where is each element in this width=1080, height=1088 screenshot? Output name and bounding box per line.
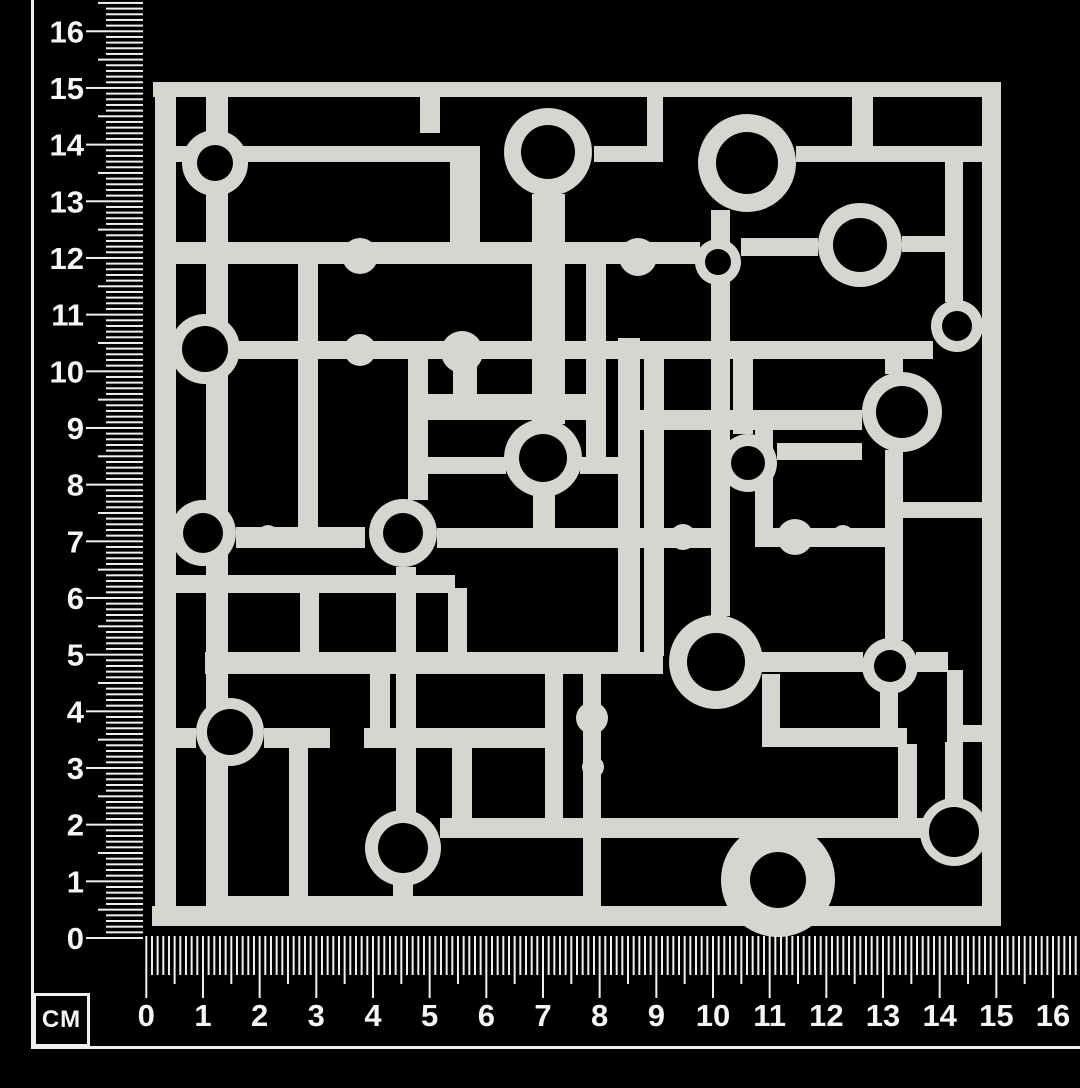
mm-tick bbox=[565, 936, 567, 975]
mm-tick bbox=[106, 665, 143, 667]
mm-tick bbox=[310, 936, 312, 975]
mm-tick bbox=[468, 936, 470, 975]
mm-tick bbox=[321, 936, 323, 975]
cm-tick bbox=[825, 936, 827, 998]
cm-unit-label: CM bbox=[42, 1006, 81, 1034]
mm-tick bbox=[519, 936, 521, 975]
mm-tick bbox=[446, 936, 448, 975]
design-dot bbox=[258, 525, 278, 545]
mm-tick bbox=[888, 936, 890, 975]
mm-tick bbox=[474, 936, 476, 975]
mm-tick bbox=[208, 936, 210, 975]
design-bar bbox=[532, 194, 565, 424]
half-cm-tick bbox=[570, 936, 572, 984]
design-ring-hole bbox=[876, 386, 928, 438]
mm-tick bbox=[610, 936, 612, 975]
design-bar bbox=[450, 146, 480, 244]
bottom-ruler-number: 15 bbox=[979, 998, 1013, 1033]
mm-tick bbox=[106, 801, 143, 803]
cm-tick bbox=[86, 767, 143, 769]
design-bar bbox=[408, 354, 428, 500]
half-cm-tick bbox=[98, 739, 143, 741]
design-bar bbox=[176, 728, 196, 748]
mm-tick bbox=[106, 70, 143, 72]
design-bar bbox=[364, 728, 545, 748]
mm-tick bbox=[106, 64, 143, 66]
mm-tick bbox=[1041, 936, 1043, 975]
mm-tick bbox=[1018, 936, 1020, 975]
mm-tick bbox=[576, 936, 578, 975]
cm-tick bbox=[655, 936, 657, 998]
mm-tick bbox=[106, 234, 143, 236]
mm-tick bbox=[264, 936, 266, 975]
bottom-ruler-number: 6 bbox=[478, 998, 495, 1033]
cm-tick bbox=[882, 936, 884, 998]
mm-tick bbox=[106, 183, 143, 185]
design-bar bbox=[647, 97, 663, 147]
bottom-ruler-number: 10 bbox=[696, 998, 730, 1033]
design-dot bbox=[576, 702, 608, 734]
mm-tick bbox=[763, 936, 765, 975]
half-cm-tick bbox=[98, 115, 143, 117]
design-bar bbox=[300, 588, 319, 658]
cm-tick bbox=[542, 936, 544, 998]
mm-tick bbox=[106, 580, 143, 582]
design-ring-hole bbox=[182, 326, 228, 372]
mm-tick bbox=[984, 936, 986, 975]
design-bar bbox=[420, 97, 440, 133]
mm-tick bbox=[774, 936, 776, 975]
half-cm-tick bbox=[98, 172, 143, 174]
mm-tick bbox=[106, 676, 143, 678]
mm-tick bbox=[1069, 936, 1071, 975]
cm-tick bbox=[259, 936, 261, 998]
design-ring-hole bbox=[750, 852, 806, 908]
mm-tick bbox=[950, 936, 952, 975]
cm-tick bbox=[1052, 936, 1054, 998]
mm-tick bbox=[106, 591, 143, 593]
mm-tick bbox=[106, 93, 143, 95]
left-ruler-number: 4 bbox=[67, 694, 85, 729]
mm-tick bbox=[106, 25, 143, 27]
mm-tick bbox=[106, 858, 143, 860]
design-bar bbox=[945, 158, 963, 302]
cm-tick bbox=[86, 880, 143, 882]
mm-tick bbox=[281, 936, 283, 975]
mm-tick bbox=[1001, 936, 1003, 975]
half-cm-tick bbox=[627, 936, 629, 984]
mm-tick bbox=[106, 121, 143, 123]
bottom-ruler-number: 11 bbox=[753, 998, 786, 1033]
mm-tick bbox=[786, 936, 788, 975]
mm-tick bbox=[808, 936, 810, 975]
mm-tick bbox=[106, 807, 143, 809]
mm-tick bbox=[106, 614, 143, 616]
mm-tick bbox=[106, 223, 143, 225]
bottom-ruler-number: 14 bbox=[922, 998, 957, 1033]
design-bar bbox=[618, 338, 640, 658]
design-ring-hole bbox=[687, 633, 745, 691]
half-cm-tick bbox=[98, 285, 143, 287]
design-dot bbox=[832, 525, 854, 547]
mm-tick bbox=[661, 936, 663, 975]
mm-tick bbox=[106, 53, 143, 55]
design-ring-hole bbox=[705, 249, 731, 275]
mm-tick bbox=[633, 936, 635, 975]
mm-tick bbox=[1058, 936, 1060, 975]
mm-tick bbox=[106, 206, 143, 208]
mm-tick bbox=[106, 217, 143, 219]
mm-tick bbox=[406, 936, 408, 975]
mm-tick bbox=[916, 936, 918, 975]
mm-tick bbox=[361, 936, 363, 975]
mm-tick bbox=[106, 784, 143, 786]
cm-tick bbox=[86, 427, 143, 429]
mm-tick bbox=[327, 936, 329, 975]
mm-tick bbox=[536, 936, 538, 975]
mm-tick bbox=[531, 936, 533, 975]
mm-tick bbox=[106, 608, 143, 610]
half-cm-tick bbox=[98, 342, 143, 344]
mm-tick bbox=[718, 936, 720, 975]
design-bar bbox=[408, 394, 600, 420]
mm-tick bbox=[106, 297, 143, 299]
mm-tick bbox=[106, 744, 143, 746]
design-ring-hole bbox=[929, 807, 979, 857]
mm-tick bbox=[106, 353, 143, 355]
mm-tick bbox=[185, 936, 187, 975]
design-ring-hole bbox=[197, 145, 233, 181]
mm-tick bbox=[106, 274, 143, 276]
mm-tick bbox=[106, 773, 143, 775]
mm-tick bbox=[106, 914, 143, 916]
mm-tick bbox=[106, 387, 143, 389]
mm-tick bbox=[735, 936, 737, 975]
mm-tick bbox=[242, 936, 244, 975]
half-cm-tick bbox=[98, 2, 143, 4]
cm-tick bbox=[712, 936, 714, 998]
half-cm-tick bbox=[457, 936, 459, 984]
mm-tick bbox=[106, 518, 143, 520]
cm-tick bbox=[485, 936, 487, 998]
mm-tick bbox=[106, 178, 143, 180]
left-ruler-number: 3 bbox=[67, 751, 84, 786]
cm-tick bbox=[599, 936, 601, 998]
mm-tick bbox=[247, 936, 249, 975]
mm-tick bbox=[106, 693, 143, 695]
design-bar bbox=[898, 744, 917, 824]
left-ruler-number: 0 bbox=[67, 921, 84, 956]
half-cm-tick bbox=[1024, 936, 1026, 984]
mm-tick bbox=[876, 936, 878, 975]
mm-tick bbox=[106, 467, 143, 469]
mm-tick bbox=[106, 104, 143, 106]
mm-tick bbox=[168, 936, 170, 975]
mm-tick bbox=[106, 671, 143, 673]
design-bar bbox=[777, 443, 862, 460]
mm-tick bbox=[899, 936, 901, 975]
mm-tick bbox=[106, 733, 143, 735]
mm-tick bbox=[276, 936, 278, 975]
half-cm-tick bbox=[98, 795, 143, 797]
mm-tick bbox=[106, 495, 143, 497]
design-bar bbox=[533, 494, 555, 530]
cm-tick bbox=[86, 370, 143, 372]
cm-tick bbox=[86, 257, 143, 259]
mm-tick bbox=[106, 416, 143, 418]
mm-tick bbox=[417, 936, 419, 975]
half-cm-tick bbox=[230, 936, 232, 984]
design-bar bbox=[428, 457, 506, 474]
design-bar bbox=[733, 354, 753, 434]
mm-tick bbox=[157, 936, 159, 975]
design-bar bbox=[741, 238, 818, 256]
half-cm-tick bbox=[174, 936, 176, 984]
mm-tick bbox=[729, 936, 731, 975]
mm-tick bbox=[525, 936, 527, 975]
mm-tick bbox=[106, 189, 143, 191]
mm-tick bbox=[106, 365, 143, 367]
mm-tick bbox=[604, 936, 606, 975]
cm-tick bbox=[86, 87, 143, 89]
mm-tick bbox=[106, 903, 143, 905]
mm-tick bbox=[667, 936, 669, 975]
design-ring-hole bbox=[731, 446, 765, 480]
design-dot bbox=[441, 331, 483, 373]
cm-tick bbox=[86, 824, 143, 826]
half-cm-tick bbox=[740, 936, 742, 984]
mm-tick bbox=[973, 936, 975, 975]
design-bar bbox=[264, 728, 330, 748]
mm-tick bbox=[752, 936, 754, 975]
mm-tick bbox=[559, 936, 561, 975]
mm-tick bbox=[106, 846, 143, 848]
mm-tick bbox=[106, 716, 143, 718]
mm-tick bbox=[593, 936, 595, 975]
half-cm-tick bbox=[344, 936, 346, 984]
mm-tick bbox=[219, 936, 221, 975]
left-ruler-number: 12 bbox=[50, 241, 84, 276]
half-cm-tick bbox=[514, 936, 516, 984]
mm-tick bbox=[106, 920, 143, 922]
cm-tick bbox=[86, 654, 143, 656]
mm-tick bbox=[366, 936, 368, 975]
mm-tick bbox=[106, 750, 143, 752]
design-bar bbox=[755, 528, 885, 547]
left-ruler-number: 10 bbox=[50, 354, 84, 389]
half-cm-tick bbox=[967, 936, 969, 984]
mm-tick bbox=[106, 212, 143, 214]
mm-tick bbox=[1012, 936, 1014, 975]
mm-tick bbox=[978, 936, 980, 975]
mm-tick bbox=[106, 926, 143, 928]
mm-tick bbox=[383, 936, 385, 975]
mm-tick bbox=[106, 110, 143, 112]
half-cm-tick bbox=[98, 852, 143, 854]
mm-tick bbox=[933, 936, 935, 975]
mm-tick bbox=[638, 936, 640, 975]
cm-tick bbox=[86, 484, 143, 486]
cm-tick bbox=[939, 936, 941, 998]
mm-tick bbox=[106, 291, 143, 293]
mm-tick bbox=[423, 936, 425, 975]
mm-tick bbox=[106, 280, 143, 282]
mm-tick bbox=[837, 936, 839, 975]
mm-tick bbox=[106, 98, 143, 100]
half-cm-tick bbox=[98, 399, 143, 401]
half-cm-tick bbox=[98, 229, 143, 231]
half-cm-tick bbox=[98, 682, 143, 684]
mm-tick bbox=[689, 936, 691, 975]
mm-tick bbox=[548, 936, 550, 975]
design-bar bbox=[448, 588, 467, 656]
design-bar bbox=[452, 748, 472, 824]
mm-tick bbox=[106, 501, 143, 503]
left-ruler-number: 14 bbox=[50, 128, 85, 163]
mm-tick bbox=[395, 936, 397, 975]
design-dot bbox=[619, 238, 657, 276]
bottom-ruler-number: 5 bbox=[421, 998, 438, 1033]
design-bar bbox=[852, 97, 873, 147]
design-ring-hole bbox=[833, 218, 887, 272]
mm-tick bbox=[106, 603, 143, 605]
mm-tick bbox=[106, 348, 143, 350]
mm-tick bbox=[502, 936, 504, 975]
mm-tick bbox=[389, 936, 391, 975]
mm-tick bbox=[106, 727, 143, 729]
design-bar bbox=[205, 652, 663, 674]
cm-tick bbox=[86, 144, 143, 146]
bottom-ruler-number: 7 bbox=[534, 998, 551, 1033]
mm-tick bbox=[106, 81, 143, 83]
design-frame-bar bbox=[153, 82, 1001, 97]
mm-tick bbox=[106, 444, 143, 446]
mm-tick bbox=[106, 586, 143, 588]
mm-tick bbox=[746, 936, 748, 975]
design-ring-hole bbox=[942, 311, 972, 341]
mm-tick bbox=[106, 308, 143, 310]
half-cm-tick bbox=[98, 909, 143, 911]
mm-tick bbox=[106, 620, 143, 622]
mm-tick bbox=[616, 936, 618, 975]
mm-tick bbox=[553, 936, 555, 975]
left-ruler-number: 9 bbox=[67, 411, 84, 446]
mm-tick bbox=[961, 936, 963, 975]
mm-tick bbox=[106, 552, 143, 554]
design-bar bbox=[885, 516, 903, 640]
cm-unit-box: CM bbox=[33, 993, 90, 1047]
design-ring-hole bbox=[207, 709, 253, 755]
design-ring-hole bbox=[383, 513, 423, 553]
mm-tick bbox=[1029, 936, 1031, 975]
design-bar bbox=[644, 356, 664, 656]
cm-tick bbox=[86, 314, 143, 316]
bottom-ruler-number: 0 bbox=[138, 998, 155, 1033]
design-bar bbox=[586, 258, 606, 462]
cm-tick bbox=[372, 936, 374, 998]
mm-tick bbox=[106, 47, 143, 49]
left-ruler-number: 8 bbox=[67, 468, 84, 503]
mm-tick bbox=[106, 76, 143, 78]
mm-tick bbox=[270, 936, 272, 975]
mm-tick bbox=[106, 438, 143, 440]
mm-tick bbox=[434, 936, 436, 975]
mm-tick bbox=[922, 936, 924, 975]
mm-tick bbox=[106, 812, 143, 814]
design-dot bbox=[342, 238, 378, 274]
mm-tick bbox=[106, 19, 143, 21]
cm-tick bbox=[86, 200, 143, 202]
mm-tick bbox=[213, 936, 215, 975]
design-bar bbox=[880, 690, 898, 730]
design-bar bbox=[393, 884, 413, 908]
mm-tick bbox=[106, 268, 143, 270]
design-dot bbox=[582, 756, 604, 778]
design-ring-hole bbox=[716, 132, 778, 194]
mm-tick bbox=[106, 863, 143, 865]
mm-tick bbox=[412, 936, 414, 975]
mm-tick bbox=[865, 936, 867, 975]
mm-tick bbox=[106, 897, 143, 899]
mm-tick bbox=[644, 936, 646, 975]
design-bar bbox=[228, 896, 601, 916]
mm-tick bbox=[814, 936, 816, 975]
design-bar bbox=[945, 742, 963, 804]
bottom-ruler-number: 13 bbox=[866, 998, 900, 1033]
mm-tick bbox=[672, 936, 674, 975]
design-ring-hole bbox=[874, 650, 906, 682]
mm-tick bbox=[106, 790, 143, 792]
left-ruler-number: 13 bbox=[50, 184, 84, 219]
mm-tick bbox=[508, 936, 510, 975]
mm-tick bbox=[701, 936, 703, 975]
design-bar bbox=[761, 652, 863, 672]
mm-tick bbox=[106, 132, 143, 134]
bottom-ruler-number: 4 bbox=[364, 998, 382, 1033]
mm-tick bbox=[842, 936, 844, 975]
mm-tick bbox=[106, 393, 143, 395]
mm-tick bbox=[298, 936, 300, 975]
left-ruler-number: 11 bbox=[51, 298, 84, 333]
mm-tick bbox=[106, 410, 143, 412]
half-cm-tick bbox=[287, 936, 289, 984]
mm-tick bbox=[106, 450, 143, 452]
mm-tick bbox=[106, 166, 143, 168]
design-bar bbox=[594, 146, 663, 162]
mm-tick bbox=[378, 936, 380, 975]
left-ruler-number: 1 bbox=[67, 864, 84, 899]
cm-tick bbox=[202, 936, 204, 998]
mm-tick bbox=[106, 835, 143, 837]
mm-tick bbox=[791, 936, 793, 975]
mm-tick bbox=[451, 936, 453, 975]
mm-tick bbox=[106, 659, 143, 661]
cm-tick bbox=[995, 936, 997, 998]
mm-tick bbox=[650, 936, 652, 975]
mm-tick bbox=[106, 705, 143, 707]
mm-tick bbox=[106, 472, 143, 474]
mm-tick bbox=[196, 936, 198, 975]
mm-tick bbox=[706, 936, 708, 975]
mm-tick bbox=[1075, 936, 1077, 975]
mm-tick bbox=[151, 936, 153, 975]
mm-tick bbox=[848, 936, 850, 975]
design-bar bbox=[947, 670, 963, 728]
design-bar bbox=[289, 746, 308, 906]
mm-tick bbox=[859, 936, 861, 975]
design-bar bbox=[370, 672, 390, 730]
mm-tick bbox=[927, 936, 929, 975]
